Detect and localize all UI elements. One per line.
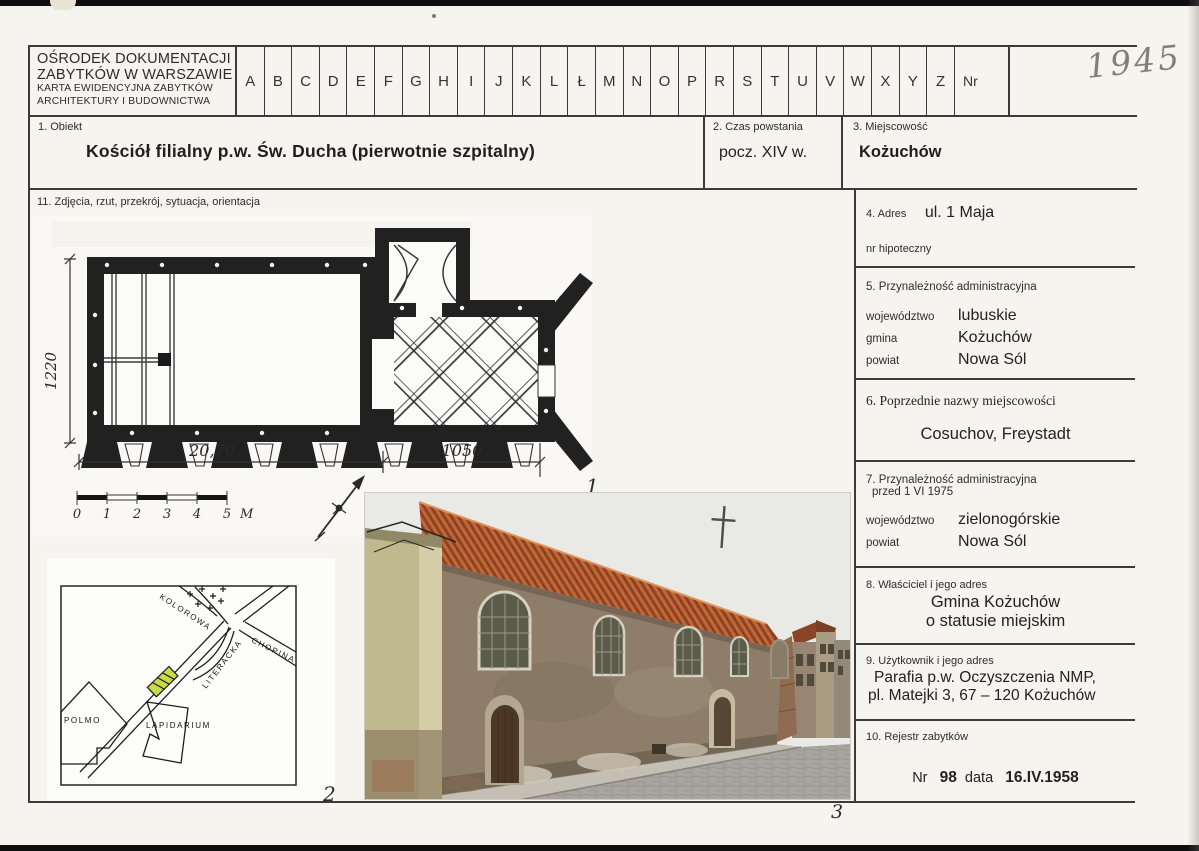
index-letter-cell: R bbox=[706, 45, 734, 117]
index-letter-cell: E bbox=[347, 45, 375, 117]
index-letter-cell: O bbox=[651, 45, 679, 117]
section-obiekt: 1. Obiekt Kościół filialny p.w. Św. Duch… bbox=[28, 117, 705, 190]
powiat-value: Nowa Sól bbox=[958, 533, 1125, 551]
section-label: 10. Rejestr zabytków bbox=[866, 731, 1125, 743]
rejestr-nr-value: 98 bbox=[940, 769, 957, 786]
plan-dim-nave: 20,70 bbox=[188, 441, 235, 460]
gmina-label: gmina bbox=[866, 333, 958, 345]
powiat-value: Nowa Sól bbox=[958, 351, 1125, 369]
details-column: 4. Adres ul. 1 Maja nr hipoteczny 5. Prz… bbox=[856, 190, 1135, 803]
section-label: 4. Adres bbox=[866, 208, 906, 220]
index-letter-cell: S bbox=[734, 45, 762, 117]
index-letter-cell: Y bbox=[900, 45, 928, 117]
adres-value: ul. 1 Maja bbox=[925, 204, 994, 221]
section-poprzednie-nazwy: 6. Poprzednie nazwy miejscowości Cosucho… bbox=[856, 380, 1135, 462]
gmina-value: Kożuchów bbox=[958, 329, 1125, 347]
section-label: 3. Miejscowość bbox=[853, 121, 1127, 133]
plan-dim-chancel: 1050 bbox=[442, 441, 483, 460]
index-letter-cell: N bbox=[624, 45, 652, 117]
scan-artifact-blob bbox=[50, 0, 76, 10]
wojewodztwo-label: województwo bbox=[866, 515, 958, 527]
rejestr-data-value: 16.IV.1958 bbox=[1005, 769, 1079, 786]
index-letter-cell: W bbox=[844, 45, 872, 117]
uzytkownik-line2: pl. Matejki 3, 67 – 120 Kożuchów bbox=[868, 687, 1125, 705]
section-przynaleznosc: 5. Przynależność administracyjna wojewód… bbox=[856, 268, 1135, 380]
section-label: 8. Właściciel i jego adres bbox=[866, 579, 1125, 591]
top-sections-row: 1. Obiekt Kościół filialny p.w. Św. Duch… bbox=[28, 117, 1137, 190]
powiat-label: powiat bbox=[866, 537, 958, 549]
section-przynaleznosc-1975: 7. Przynależność administracyjna przed 1… bbox=[856, 462, 1135, 568]
section-rejestr: 10. Rejestr zabytków Nr 98 data 16.IV.19… bbox=[856, 721, 1135, 803]
rejestr-nr-label: Nr bbox=[912, 770, 927, 786]
header-tail bbox=[1010, 45, 1137, 117]
figure-number-photo: 3 bbox=[831, 801, 843, 823]
org-line: ARCHITEKTURY I BUDOWNICTWA bbox=[37, 96, 229, 109]
index-letter-cell: U bbox=[789, 45, 817, 117]
scale-tick: 4 bbox=[192, 507, 201, 522]
section-adres: 4. Adres ul. 1 Maja nr hipoteczny bbox=[856, 190, 1135, 268]
org-line: ZABYTKÓW W WARSZAWIE bbox=[37, 67, 229, 83]
section-label: 1. Obiekt bbox=[38, 121, 695, 133]
index-letter-cell: C bbox=[292, 45, 320, 117]
scale-tick: 2 bbox=[132, 507, 141, 522]
index-letter-cell: Z bbox=[927, 45, 955, 117]
section-label: 11. Zdjęcia, rzut, przekrój, sytuacja, o… bbox=[37, 196, 260, 208]
scale-tick: 3 bbox=[163, 507, 171, 522]
scan-edge-bottom bbox=[0, 845, 1199, 851]
rejestr-data-label: data bbox=[965, 770, 993, 786]
section-czas-powstania: 2. Czas powstania pocz. XIV w. bbox=[705, 117, 843, 190]
org-line: KARTA EWIDENCYJNA ZABYTKÓW bbox=[37, 83, 229, 96]
card-header: OŚRODEK DOKUMENTACJI ZABYTKÓW W WARSZAWI… bbox=[28, 45, 1137, 117]
wlasciciel-line2: o statusie miejskim bbox=[866, 612, 1125, 631]
scan-artifact-dot bbox=[432, 14, 436, 18]
wojewodztwo-value: lubuskie bbox=[958, 307, 1125, 325]
uzytkownik-line1: Parafia p.w. Oczyszczenia NMP, bbox=[874, 669, 1125, 687]
index-letter-cell: I bbox=[458, 45, 486, 117]
org-title-box: OŚRODEK DOKUMENTACJI ZABYTKÓW W WARSZAWI… bbox=[28, 45, 237, 117]
net-vault bbox=[394, 317, 538, 425]
section-miejscowosc: 3. Miejscowość Kożuchów bbox=[843, 117, 1137, 190]
czas-value: pocz. XIV w. bbox=[719, 144, 833, 162]
object-title: Kościół filialny p.w. Św. Ducha (pierwot… bbox=[86, 141, 695, 162]
plan-dim-height: 1220 bbox=[42, 351, 60, 390]
site-map: KOLOROWA CHOPINA LITERACKA POLMO LAPIDAR… bbox=[47, 558, 337, 805]
scan-edge-shade bbox=[1187, 0, 1199, 851]
org-line: OŚRODEK DOKUMENTACJI bbox=[37, 51, 229, 67]
index-letter-cell: X bbox=[872, 45, 900, 117]
hipoteczny-label: nr hipoteczny bbox=[866, 243, 1125, 255]
index-letter-cell: A bbox=[237, 45, 265, 117]
index-letter-cell: F bbox=[375, 45, 403, 117]
index-letter-cell: P bbox=[679, 45, 707, 117]
miejscowosc-value: Kożuchów bbox=[859, 143, 1127, 162]
church-photo bbox=[364, 492, 851, 800]
scale-tick: 5 bbox=[223, 507, 231, 522]
figure-number-map: 2 bbox=[322, 782, 336, 805]
index-letter-cell: H bbox=[430, 45, 458, 117]
index-letter-row: A B C D E F G H I J K L Ł M N O P R S T … bbox=[237, 45, 955, 117]
index-letter-cell: G bbox=[403, 45, 431, 117]
wojewodztwo-label: województwo bbox=[866, 311, 958, 323]
section-label-line2: przed 1 VI 1975 bbox=[872, 486, 1125, 498]
scale-tick: 0 bbox=[73, 507, 81, 522]
index-letter-cell: V bbox=[817, 45, 845, 117]
building-label-lapidarium: LAPIDARIUM bbox=[146, 721, 211, 730]
index-letter-cell: M bbox=[596, 45, 624, 117]
index-letter-cell: L bbox=[541, 45, 569, 117]
powiat-label: powiat bbox=[866, 355, 958, 367]
wlasciciel-line1: Gmina Kożuchów bbox=[866, 593, 1125, 612]
wojewodztwo-value: zielonogórskie bbox=[958, 511, 1125, 529]
scale-unit: M bbox=[239, 507, 254, 522]
section-label: 9. Użytkownik i jego adres bbox=[866, 655, 1125, 667]
section-label: 6. Poprzednie nazwy miejscowości bbox=[866, 393, 1125, 409]
index-letter-cell: K bbox=[513, 45, 541, 117]
index-letter-cell: Ł bbox=[568, 45, 596, 117]
building-label-polmo: POLMO bbox=[64, 716, 101, 725]
section-label: 5. Przynależność administracyjna bbox=[866, 281, 1125, 293]
section-uzytkownik: 9. Użytkownik i jego adres Parafia p.w. … bbox=[856, 645, 1135, 721]
index-letter-cell: B bbox=[265, 45, 293, 117]
scan-edge-top bbox=[0, 0, 1199, 6]
section-wlasciciel: 8. Właściciel i jego adres Gmina Kożuchó… bbox=[856, 568, 1135, 645]
index-letter-cell: J bbox=[485, 45, 513, 117]
section-label: 7. Przynależność administracyjna bbox=[866, 474, 1125, 486]
nr-cell: Nr bbox=[955, 45, 1010, 117]
poprzednie-value: Cosuchov, Freystadt bbox=[866, 425, 1125, 444]
index-letter-cell: T bbox=[762, 45, 790, 117]
index-letter-cell: D bbox=[320, 45, 348, 117]
heritage-record-card: 1945 OŚRODEK DOKUMENTACJI ZABYTKÓW W WAR… bbox=[0, 0, 1199, 851]
scale-tick: 1 bbox=[103, 507, 111, 522]
section-label: 2. Czas powstania bbox=[713, 121, 833, 133]
